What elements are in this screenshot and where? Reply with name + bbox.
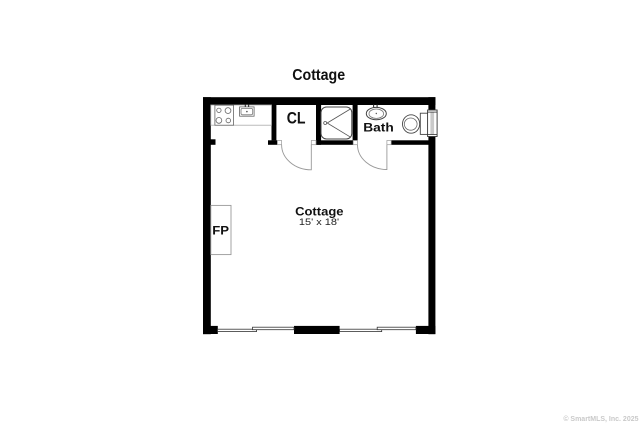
svg-text:CL: CL	[287, 110, 306, 128]
svg-text:FP: FP	[212, 223, 229, 238]
svg-text:15' x 18': 15' x 18'	[299, 218, 339, 228]
svg-text:Bath: Bath	[363, 120, 394, 134]
svg-text:Cottage: Cottage	[292, 67, 345, 85]
svg-text:© SmartMLS, Inc. 2025: © SmartMLS, Inc. 2025	[563, 415, 638, 423]
svg-text:Cottage: Cottage	[295, 204, 343, 219]
